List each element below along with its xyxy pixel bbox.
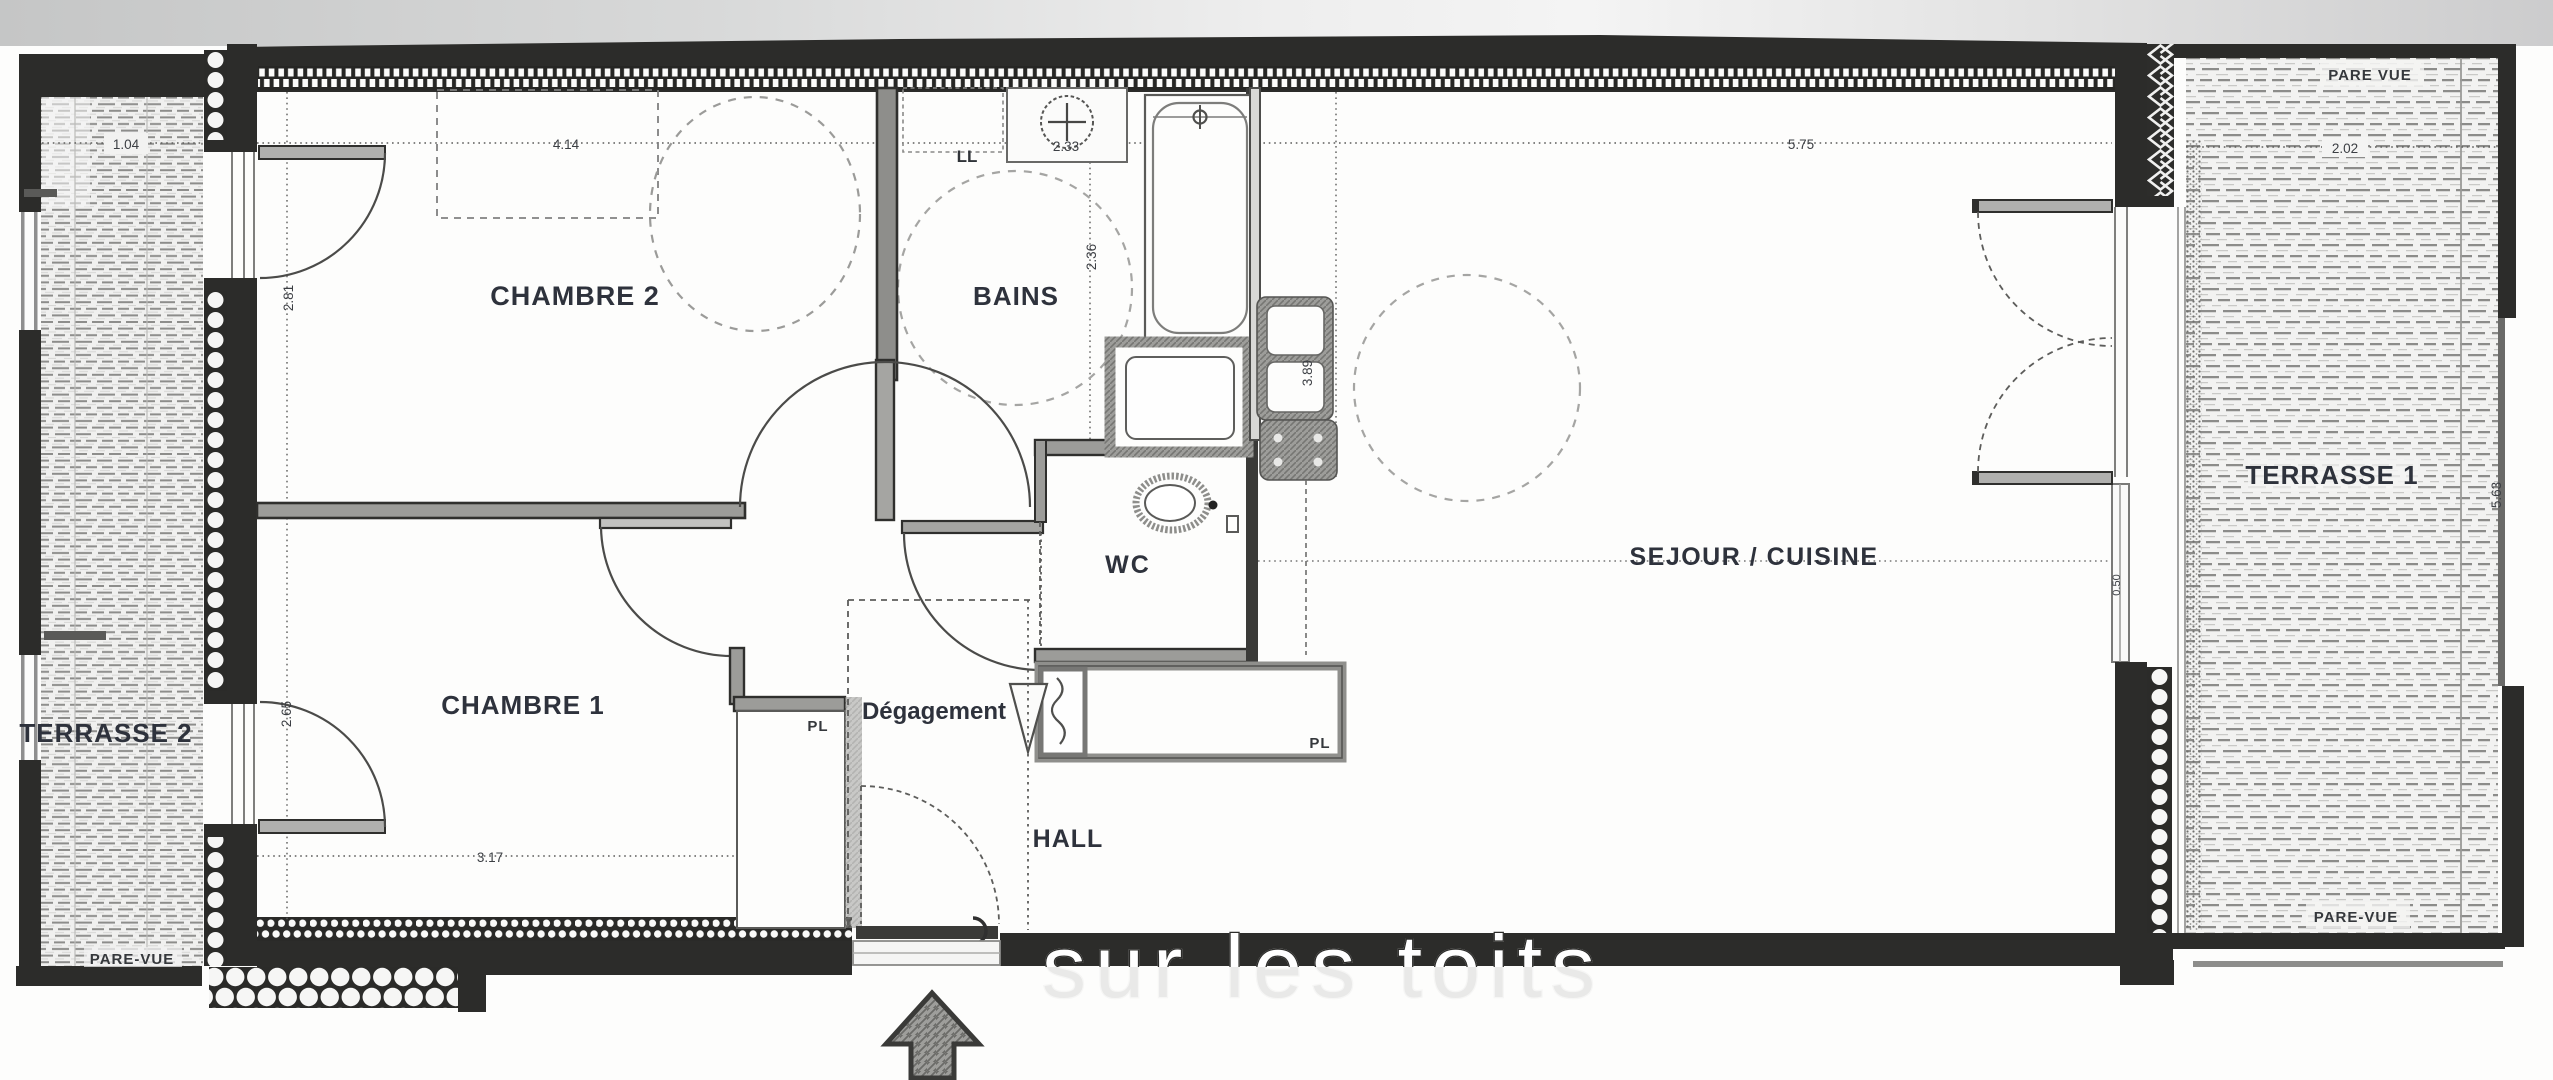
svg-text:TERRASSE 1: TERRASSE 1 xyxy=(2245,460,2418,490)
svg-text:CHAMBRE 2: CHAMBRE 2 xyxy=(490,281,660,311)
svg-text:5.63: 5.63 xyxy=(2489,482,2504,508)
svg-text:PARE-VUE: PARE-VUE xyxy=(90,951,174,968)
svg-text:2.33: 2.33 xyxy=(1053,139,1079,154)
svg-text:2.81: 2.81 xyxy=(281,285,296,311)
svg-text:SEJOUR / CUISINE: SEJOUR / CUISINE xyxy=(1629,543,1878,571)
svg-text:WC: WC xyxy=(1105,551,1151,579)
svg-text:LL: LL xyxy=(957,147,978,166)
svg-text:Dégagement: Dégagement xyxy=(862,698,1006,725)
svg-text:3.17: 3.17 xyxy=(477,850,503,865)
svg-text:0.50: 0.50 xyxy=(2111,574,2123,595)
svg-text:HALL: HALL xyxy=(1033,825,1104,853)
svg-text:PARE-VUE: PARE-VUE xyxy=(2314,909,2398,926)
svg-text:2.02: 2.02 xyxy=(2332,141,2358,156)
svg-text:5.75: 5.75 xyxy=(1788,137,1814,152)
svg-text:CHAMBRE 1: CHAMBRE 1 xyxy=(441,690,605,720)
svg-text:3.89: 3.89 xyxy=(1300,360,1315,386)
svg-text:PARE VUE: PARE VUE xyxy=(2328,67,2412,84)
svg-text:2.65: 2.65 xyxy=(279,701,294,727)
svg-text:2.36: 2.36 xyxy=(1084,244,1099,270)
svg-text:TERRASSE 2: TERRASSE 2 xyxy=(19,718,192,748)
svg-text:BAINS: BAINS xyxy=(973,281,1059,311)
svg-text:PL: PL xyxy=(807,718,828,735)
svg-text:PL: PL xyxy=(1309,735,1330,752)
svg-text:1.04: 1.04 xyxy=(113,137,140,152)
svg-text:4.14: 4.14 xyxy=(553,137,580,152)
